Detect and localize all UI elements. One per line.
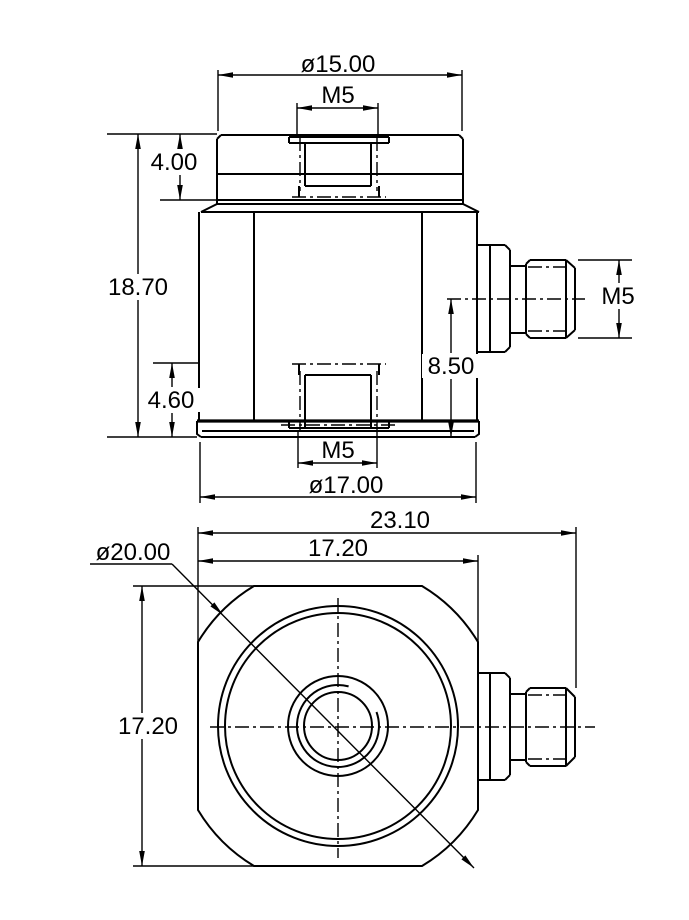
dim-base-thread-label: M5 bbox=[321, 437, 354, 464]
dim-cap-height: 4.00 bbox=[107, 134, 217, 200]
dim-overall-width-label: 23.10 bbox=[370, 507, 430, 534]
dim-base-height: 4.60 bbox=[142, 363, 200, 437]
dim-across-flats-height-label: 17.20 bbox=[118, 713, 178, 740]
dim-connector-thread-label: M5 bbox=[601, 283, 634, 310]
dim-connector-center-height-label: 8.50 bbox=[428, 353, 475, 380]
dim-cap-thread: M5 bbox=[297, 82, 378, 136]
dim-across-flats-height: 17.20 bbox=[109, 586, 254, 866]
dim-total-height-label: 18.70 bbox=[108, 274, 168, 301]
dim-cap-thread-label: M5 bbox=[321, 82, 354, 109]
dim-body-diameter: ø20.00 bbox=[90, 539, 476, 870]
dim-cap-diameter-label: ø15.00 bbox=[301, 51, 376, 78]
cap-outline bbox=[201, 135, 479, 212]
drawing-canvas: ø15.00 M5 4.00 18.70 bbox=[0, 0, 689, 920]
front-view: ø15.00 M5 4.00 18.70 bbox=[107, 51, 639, 503]
cap-thread-hole bbox=[289, 137, 389, 197]
technical-drawing: ø15.00 M5 4.00 18.70 bbox=[0, 0, 689, 920]
dim-cap-height-label: 4.00 bbox=[151, 149, 198, 176]
dim-base-diameter-label: ø17.00 bbox=[309, 472, 384, 499]
dim-overall-width: 23.10 bbox=[198, 507, 576, 688]
connector-stud-front bbox=[447, 245, 585, 352]
dim-connector-center-height: 8.50 bbox=[422, 299, 480, 437]
plan-view: 23.10 17.20 17.20 ø20.00 bbox=[90, 507, 595, 870]
dim-body-diameter-label: ø20.00 bbox=[96, 539, 171, 566]
dim-base-height-label: 4.60 bbox=[148, 387, 195, 414]
dim-across-flats-width-label: 17.20 bbox=[308, 535, 368, 562]
body-outline bbox=[199, 212, 477, 421]
dim-connector-thread: M5 bbox=[578, 260, 639, 338]
